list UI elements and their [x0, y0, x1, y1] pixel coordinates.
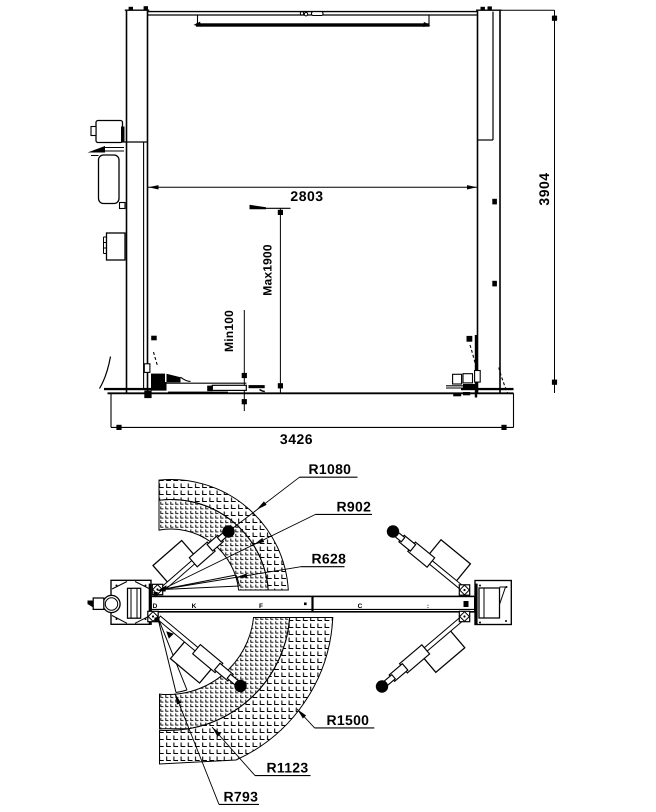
svg-text:3904: 3904 [536, 172, 552, 205]
svg-text:R628: R628 [312, 551, 347, 567]
svg-text:R1080: R1080 [309, 461, 352, 477]
svg-text:3426: 3426 [280, 431, 313, 447]
svg-text:R1500: R1500 [327, 712, 370, 728]
svg-text:F: F [259, 603, 263, 610]
svg-text:Max1900: Max1900 [260, 244, 274, 296]
svg-text:D: D [153, 603, 158, 610]
svg-text:K: K [192, 603, 197, 610]
svg-text::: : [427, 603, 429, 610]
svg-text:2803: 2803 [290, 188, 323, 204]
svg-text:Min100: Min100 [222, 310, 236, 352]
svg-text:R793: R793 [224, 788, 259, 804]
svg-text:R1123: R1123 [267, 760, 309, 776]
svg-text:C: C [358, 603, 363, 610]
svg-text:R902: R902 [337, 498, 372, 514]
